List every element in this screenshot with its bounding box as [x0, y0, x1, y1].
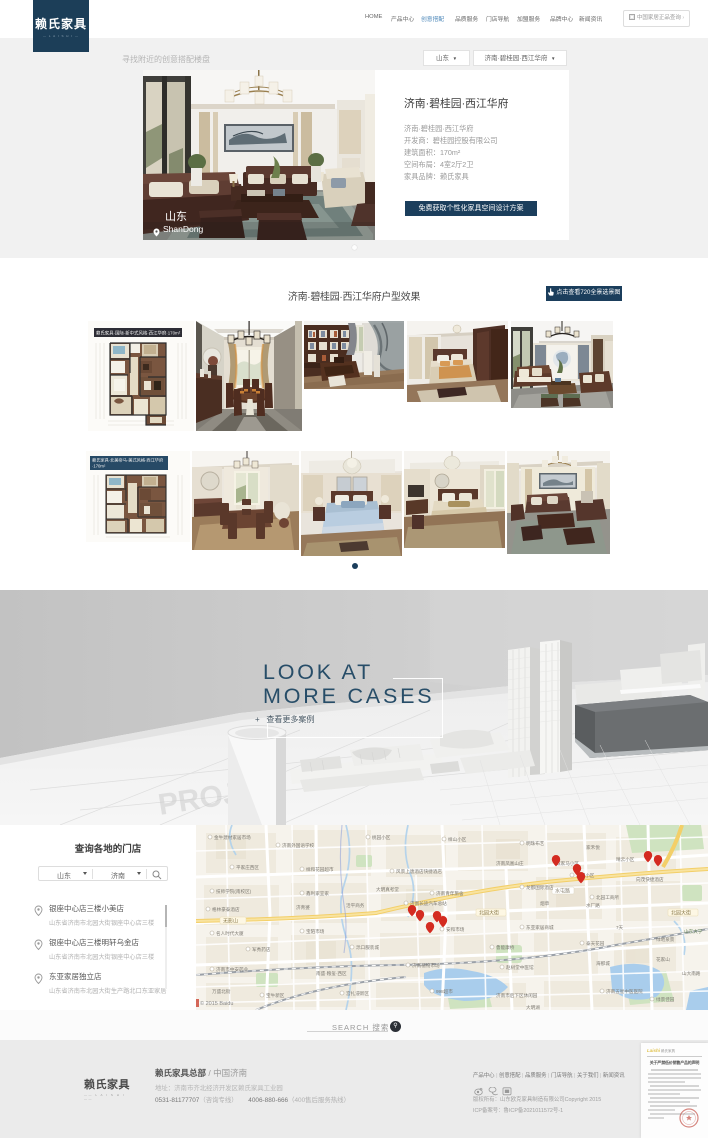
svg-text:水屯路: 水屯路 [555, 888, 570, 895]
svg-text:活平商务: 活平商务 [346, 902, 365, 909]
svg-text:赖氏家具·北美帝马·美式风格·西江华府: 赖氏家具·北美帝马·美式风格·西江华府 [92, 457, 163, 464]
svg-text:鑫利家宜家: 鑫利家宜家 [306, 890, 329, 897]
svg-text:© 2015 Baidu: © 2015 Baidu [200, 1000, 233, 1007]
svg-text:无影山: 无影山 [223, 918, 238, 925]
svg-text:晴云小区: 晴云小区 [616, 856, 635, 863]
svg-text:绿景佳园: 绿景佳园 [656, 996, 675, 1003]
svg-text:济南市后下区休闲园: 济南市后下区休闲园 [496, 992, 538, 999]
svg-text:样和花园超市: 样和花园超市 [306, 866, 334, 873]
svg-text:军秀药店: 军秀药店 [252, 946, 271, 953]
svg-text:安和市场: 安和市场 [446, 926, 465, 933]
svg-text:桃园小区: 桃园小区 [372, 834, 391, 841]
svg-text:泺口服装城: 泺口服装城 [356, 944, 379, 951]
svg-text:龙都国际酒店: 龙都国际酒店 [526, 884, 554, 891]
svg-text:济南外国语学校: 济南外国语学校 [282, 842, 315, 849]
svg-text:鲁能康桥: 鲁能康桥 [496, 944, 515, 951]
svg-text:济南植物市场: 济南植物市场 [412, 962, 440, 969]
svg-text:海那城: 海那城 [596, 960, 610, 967]
svg-text:济南五星中医医院: 济南五星中医医院 [606, 988, 643, 995]
svg-text:万盛北街: 万盛北街 [212, 988, 231, 995]
svg-text:样山小区: 样山小区 [448, 836, 467, 843]
svg-text:998超市: 998超市 [436, 988, 453, 995]
svg-text:格林豪泰酒店: 格林豪泰酒店 [212, 906, 240, 913]
svg-text:东亚家居商城: 东亚家居商城 [526, 924, 554, 931]
svg-text:山大南路: 山大南路 [682, 970, 701, 977]
svg-text:山东大学: 山东大学 [684, 928, 703, 935]
svg-text:宫扎浸新区: 宫扎浸新区 [346, 990, 369, 997]
svg-text:济南长途汽车总站: 济南长途汽车总站 [410, 900, 447, 907]
svg-text:水厂路: 水厂路 [586, 902, 600, 909]
svg-text:赖氏家具·国际·新中式风格·西江华府·170m²: 赖氏家具·国际·新中式风格·西江华府·170m² [96, 330, 181, 337]
svg-text:泰天花园: 泰天花园 [586, 940, 605, 947]
svg-text:北园大街: 北园大街 [479, 910, 499, 917]
svg-text:平家庄西区: 平家庄西区 [236, 864, 259, 871]
svg-text:技师学院(南校区): 技师学院(南校区) [216, 888, 252, 895]
svg-text:风景上唐酒店快捷酒店: 风景上唐酒店快捷酒店 [396, 868, 442, 875]
svg-text:·170m²: ·170m² [92, 464, 106, 469]
svg-text:北园工商所: 北园工商所 [596, 894, 619, 901]
svg-text:明珠布艺: 明珠布艺 [526, 840, 545, 847]
svg-text:大明真考堂: 大明真考堂 [376, 886, 399, 893]
svg-text:济南凤凰山庄: 济南凤凰山庄 [496, 860, 524, 867]
svg-text:南盛·粮玺·西区: 南盛·粮玺·西区 [316, 970, 347, 977]
svg-text:济南市中安药业: 济南市中安药业 [216, 966, 249, 973]
svg-text:绿地泉景: 绿地泉景 [656, 936, 675, 943]
svg-text:金牛建材家居市场: 金牛建材家居市场 [214, 834, 251, 841]
svg-text:家禾悦: 家禾悦 [586, 844, 600, 851]
svg-text:赵树堂中医馆: 赵树堂中医馆 [506, 964, 534, 971]
svg-text:济青婆: 济青婆 [296, 904, 310, 911]
svg-text:名人时代大厦: 名人时代大厦 [216, 930, 244, 937]
svg-text:济南青年旅舍: 济南青年旅舍 [436, 890, 464, 897]
svg-text:宝牛新区: 宝牛新区 [266, 992, 285, 999]
svg-text:向茂快捷酒店: 向茂快捷酒店 [636, 876, 664, 883]
svg-text:花家山: 花家山 [656, 956, 670, 963]
svg-text:烟草: 烟草 [540, 900, 550, 907]
svg-text:北园大街: 北园大街 [671, 910, 691, 917]
svg-text:宝陌市场: 宝陌市场 [306, 928, 325, 935]
